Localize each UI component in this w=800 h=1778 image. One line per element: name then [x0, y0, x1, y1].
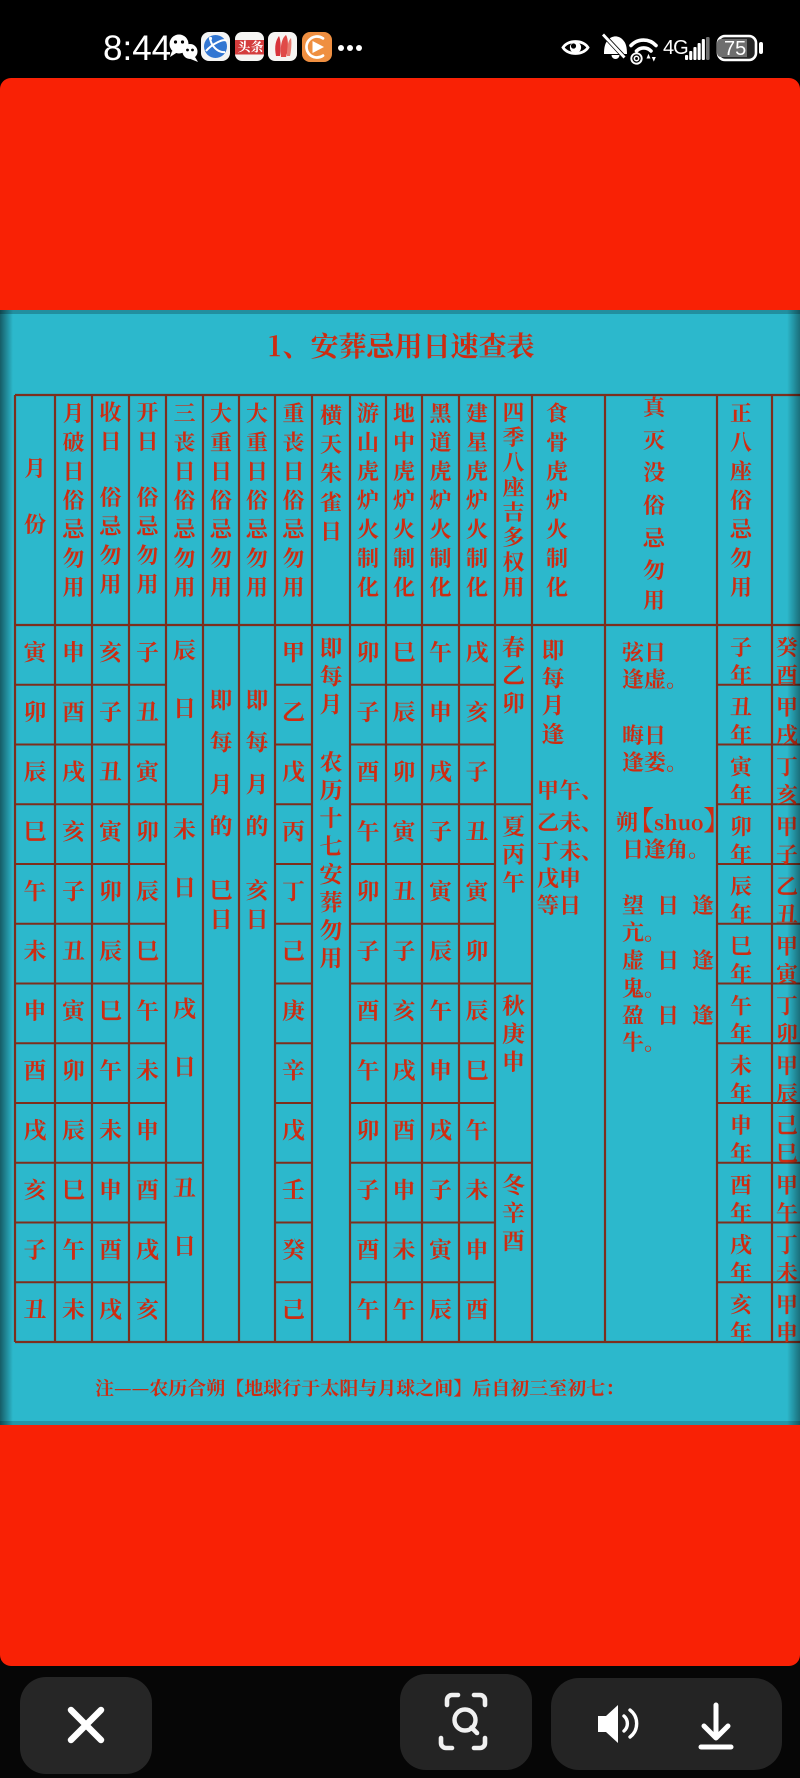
svg-text:4G: 4G — [663, 37, 688, 59]
svg-text:8:44: 8:44 — [103, 29, 171, 68]
svg-text:75: 75 — [724, 38, 746, 60]
